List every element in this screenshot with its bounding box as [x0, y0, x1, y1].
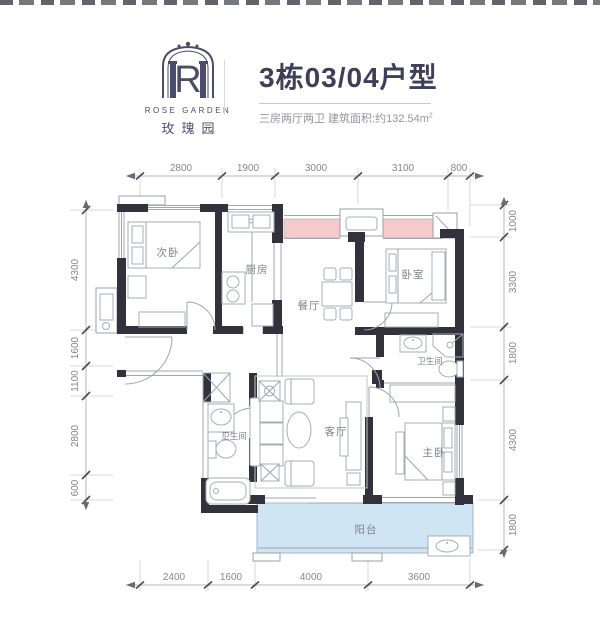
- dim-bottom-1: 2400: [163, 572, 186, 583]
- room-label-master: 主卧: [423, 446, 446, 459]
- dim-left-1: 4300: [70, 258, 81, 281]
- dim-bottom-2: 1600: [220, 572, 243, 583]
- dim-bottom-3: 4000: [300, 572, 323, 583]
- balcony-basin: [428, 536, 470, 556]
- dim-left-4: 2800: [70, 424, 81, 447]
- dining-set: [322, 268, 352, 320]
- floorplan-page: R ROSE GARDEN 玫瑰园 3栋03/04户型 三房两厅两卫 建筑面积:…: [0, 0, 600, 621]
- room-label-kitchen: 厨房: [246, 263, 269, 276]
- dim-top-5: 800: [451, 163, 468, 174]
- dim-top-2: 1900: [237, 163, 260, 174]
- room-label-bedroom2: 次卧: [157, 246, 180, 259]
- exterior-water-heater: [96, 288, 117, 333]
- floorplan-drawing: 2800 1900 3000 3100 800 4300 1600 1100 2…: [0, 0, 600, 621]
- room-label-living: 客厅: [325, 425, 348, 438]
- room-label-dining: 餐厅: [298, 299, 321, 312]
- room-label-bath-left: 卫生间: [221, 431, 247, 441]
- dim-bottom-4: 3600: [408, 572, 431, 583]
- dim-top-4: 3100: [392, 163, 415, 174]
- bed-secondary: [128, 222, 200, 298]
- dim-chain-top: 2800 1900 3000 3100 800: [126, 163, 484, 226]
- dim-chain-bottom: 2400 1600 4000 3600: [126, 558, 484, 591]
- living-room-furniture: [250, 376, 367, 488]
- room-label-bath-right: 卫生间: [417, 356, 443, 366]
- dim-right-4: 4300: [508, 428, 519, 451]
- window-seat: [340, 209, 383, 236]
- dim-right-5: 1800: [508, 513, 519, 536]
- dim-right-1: 1000: [508, 209, 519, 232]
- dim-top-1: 2800: [170, 163, 193, 174]
- room-label-bedroom3: 卧室: [402, 268, 425, 281]
- dim-chain-left: 4300 1600 1100 2800 600: [70, 200, 113, 510]
- dim-right-3: 1800: [508, 341, 519, 364]
- dim-left-2: 1600: [70, 336, 81, 359]
- dim-top-3: 3000: [305, 163, 328, 174]
- dim-chain-right: 1000 3300 1800 4300 1800: [470, 197, 519, 558]
- dim-right-2: 3300: [508, 270, 519, 293]
- dim-left-3: 1100: [70, 370, 81, 392]
- bathroom-left-fixtures: [206, 404, 250, 504]
- room-label-balcony: 阳台: [355, 523, 378, 536]
- dim-left-5: 600: [70, 479, 81, 496]
